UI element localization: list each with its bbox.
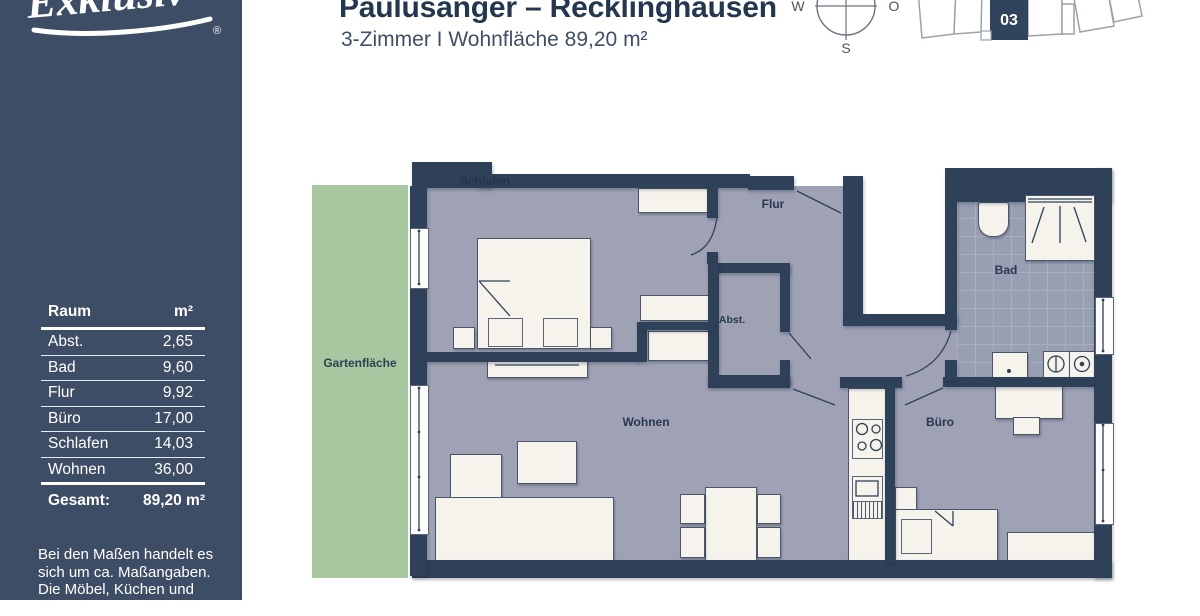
washing-machine xyxy=(1043,351,1070,378)
dryer xyxy=(1069,351,1096,378)
room-label-hall: Flur xyxy=(762,197,785,211)
dishwasher xyxy=(852,501,883,519)
room-area-table: Raum m² Abst. 2,65 Bad 9,60 Flur 9,92 Bü… xyxy=(41,303,205,510)
disclaimer-line: Bei den Maßen handelt es xyxy=(38,546,233,564)
room-name: Schlafen xyxy=(48,435,108,453)
wall-bath-west xyxy=(945,200,957,330)
disclaimer-line: sich um ca. Maßangaben. xyxy=(38,564,233,582)
wall-bottom xyxy=(412,560,1112,578)
wall-bath-west-stub xyxy=(945,360,957,380)
table-row: Bad 9,60 xyxy=(41,356,205,382)
desk-chair xyxy=(1013,417,1040,435)
sideboard xyxy=(1007,532,1097,561)
wall-recess-bottom xyxy=(843,314,957,326)
disclaimer-line: Die Möbel, Küchen und xyxy=(38,581,233,599)
room-label-bath: Bad xyxy=(995,263,1018,277)
room-name: Büro xyxy=(48,410,81,428)
garden-area xyxy=(312,185,408,578)
room-label-storage: Abst. xyxy=(719,314,745,326)
table-row: Büro 17,00 xyxy=(41,407,205,433)
hall-cabinet xyxy=(648,331,710,361)
chair xyxy=(680,527,705,558)
coffee-table xyxy=(517,441,577,484)
toilet xyxy=(978,202,1009,237)
room-area: 14,03 xyxy=(154,435,193,453)
main-area: Paulusanger – Recklinghausen 3-Zimmer I … xyxy=(242,0,1200,600)
table-row: Wohnen 36,00 xyxy=(41,458,205,486)
wall-storage-right xyxy=(780,263,790,332)
window-bedroom xyxy=(410,228,429,289)
wall-bath-bottom xyxy=(943,377,1094,387)
total-value: 89,20 m² xyxy=(143,492,205,510)
room-area: 2,65 xyxy=(163,333,193,351)
room-label-living: Wohnen xyxy=(622,415,669,429)
wardrobe xyxy=(640,295,710,321)
wall-hall-living-a xyxy=(708,377,790,388)
wall-top-hall xyxy=(748,176,794,190)
chair xyxy=(680,494,705,524)
wall-bedroom-bottom xyxy=(426,352,639,362)
room-name: Wohnen xyxy=(48,461,105,479)
page: Exklusiv ® Raum m² Abst. 2,65 Bad 9,60 F… xyxy=(0,0,1200,600)
room-name: Flur xyxy=(48,384,75,402)
pillow xyxy=(543,318,578,347)
nightstand xyxy=(895,487,917,511)
table-row: Schlafen 14,03 xyxy=(41,432,205,458)
chair xyxy=(757,494,781,524)
wall-storage-top xyxy=(708,263,790,273)
desk xyxy=(995,386,1063,419)
dining-table xyxy=(705,487,757,566)
table-header: Raum m² xyxy=(41,303,205,330)
pillow xyxy=(901,519,932,554)
wall-nook-top xyxy=(637,322,714,330)
room-label-garden: Gartenfläche xyxy=(323,356,396,370)
total-label: Gesamt: xyxy=(48,492,110,510)
registered-mark: ® xyxy=(213,25,221,37)
wall-bedroom-right xyxy=(707,186,718,218)
floorplan: Schlafen Flur Abst. Bad Wohnen Büro Gart… xyxy=(242,0,1200,600)
disclaimer-text: Bei den Maßen handelt es sich um ca. Maß… xyxy=(38,546,233,616)
room-area: 36,00 xyxy=(154,461,193,479)
pillow xyxy=(488,318,523,347)
window-office xyxy=(1095,423,1114,525)
window-bath xyxy=(1095,297,1114,355)
room-name: Abst. xyxy=(48,333,83,351)
room-label-bedroom: Schlafen xyxy=(460,174,510,188)
disclaimer-line: Sanitärobjekte sind xyxy=(38,599,233,616)
cooktop xyxy=(852,419,883,459)
room-label-office: Büro xyxy=(926,415,954,429)
table-total-row: Gesamt: 89,20 m² xyxy=(41,485,205,510)
table-row: Flur 9,92 xyxy=(41,381,205,407)
nightstand xyxy=(590,327,612,349)
col-room: Raum xyxy=(48,303,91,321)
sidebar: Exklusiv ® Raum m² Abst. 2,65 Bad 9,60 F… xyxy=(0,0,242,600)
exterior-recess xyxy=(863,172,945,318)
room-area: 9,92 xyxy=(163,384,193,402)
bath-sink xyxy=(992,352,1028,378)
room-area: 9,60 xyxy=(163,359,193,377)
room-area: 17,00 xyxy=(154,410,193,428)
shower xyxy=(1025,195,1095,261)
exklusiv-logo: Exklusiv ® xyxy=(12,0,230,42)
wall-kitchen-office xyxy=(885,386,895,562)
wall-entry-right xyxy=(843,176,863,322)
table-row: Abst. 2,65 xyxy=(41,330,205,356)
logo-text: Exklusiv xyxy=(24,0,188,28)
sofa xyxy=(435,497,614,564)
nightstand xyxy=(453,327,475,349)
chair xyxy=(757,527,781,558)
room-name: Bad xyxy=(48,359,76,377)
kitchen-sink xyxy=(852,476,883,502)
wardrobe xyxy=(638,188,708,213)
window-living xyxy=(410,385,429,535)
col-area: m² xyxy=(174,303,193,321)
